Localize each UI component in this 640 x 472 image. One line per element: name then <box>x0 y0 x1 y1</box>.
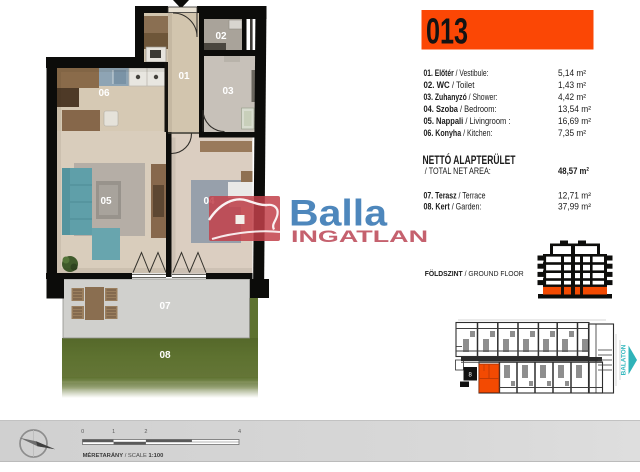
svg-text:4: 4 <box>238 429 241 435</box>
svg-text:05. Nappali / Livingroom :: 05. Nappali / Livingroom : <box>424 116 511 126</box>
svg-text:07. Terasz / Terrace: 07. Terasz / Terrace <box>424 190 486 200</box>
svg-text:01. Előtér / Vestibule:: 01. Előtér / Vestibule: <box>424 68 489 78</box>
svg-text:0: 0 <box>81 429 84 435</box>
svg-text:FÖLDSZINT / GROUND FLOOR: FÖLDSZINT / GROUND FLOOR <box>425 269 524 278</box>
svg-text:/ TOTAL NET AREA:: / TOTAL NET AREA: <box>425 166 491 177</box>
svg-text:06: 06 <box>98 88 110 99</box>
svg-text:013: 013 <box>426 10 468 51</box>
svg-text:2: 2 <box>144 429 147 435</box>
svg-text:7,35 m²: 7,35 m² <box>558 128 586 138</box>
svg-text:08: 08 <box>159 350 171 361</box>
svg-text:02. WC / Toilet: 02. WC / Toilet <box>424 80 475 90</box>
svg-text:48,57 m²: 48,57 m² <box>558 166 589 177</box>
svg-text:03. Zuhanyzó / Shower:: 03. Zuhanyzó / Shower: <box>424 92 498 102</box>
svg-text:05: 05 <box>100 196 112 207</box>
svg-text:03: 03 <box>222 86 234 97</box>
svg-text:06. Konyha / Kitchen:: 06. Konyha / Kitchen: <box>424 128 493 138</box>
svg-text:INGATLAN: INGATLAN <box>291 227 428 246</box>
svg-text:BALATON: BALATON <box>621 344 628 375</box>
svg-text:37,99 m²: 37,99 m² <box>558 202 591 212</box>
svg-text:02: 02 <box>215 31 227 42</box>
svg-text:5,14 m²: 5,14 m² <box>558 68 586 78</box>
svg-text:07: 07 <box>159 301 171 312</box>
svg-text:4,42 m²: 4,42 m² <box>558 92 586 102</box>
svg-text:1: 1 <box>112 429 115 435</box>
svg-text:04. Szoba / Bedroom:: 04. Szoba / Bedroom: <box>424 104 497 114</box>
svg-text:01: 01 <box>178 71 190 82</box>
svg-text:1,43 m²: 1,43 m² <box>558 80 586 90</box>
svg-text:08. Kert / Garden:: 08. Kert / Garden: <box>424 202 482 212</box>
svg-text:12,71 m²: 12,71 m² <box>558 190 591 200</box>
svg-text:16,69 m²: 16,69 m² <box>558 116 591 126</box>
svg-text:MÉRETARÁNY / SCALE 1:100: MÉRETARÁNY / SCALE 1:100 <box>83 451 164 459</box>
svg-text:13,54 m²: 13,54 m² <box>558 104 591 114</box>
